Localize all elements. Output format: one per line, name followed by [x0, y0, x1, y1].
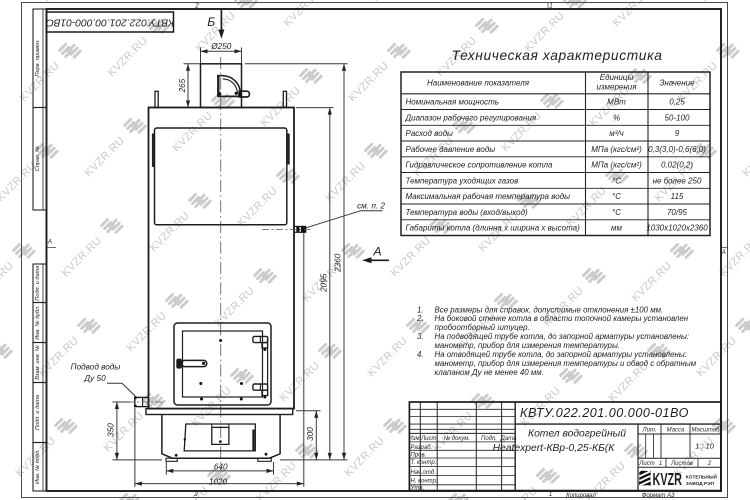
svg-text:0,25: 0,25 [669, 98, 685, 107]
svg-text:9: 9 [675, 129, 680, 138]
svg-text:Взам. инв. №: Взам. инв. № [35, 345, 41, 380]
svg-text:70/95: 70/95 [667, 208, 688, 217]
svg-text:Формат А3: Формат А3 [642, 493, 675, 499]
svg-text:Дата: Дата [500, 436, 517, 442]
svg-text:Инв. № подл.: Инв. № подл. [35, 449, 41, 484]
svg-text:Утв.: Утв. [410, 486, 425, 492]
svg-text:Лит.: Лит. [641, 427, 656, 433]
svg-text:Температура воды (вход/выход): Температура воды (вход/выход) [406, 208, 528, 217]
svg-text:0,3(3,0)-0,6(6,0): 0,3(3,0)-0,6(6,0) [648, 145, 706, 154]
svg-text:Разраб.: Разраб. [411, 445, 433, 451]
svg-text:1030х1020х2360: 1030х1020х2360 [646, 224, 708, 233]
svg-text:Копировал: Копировал [566, 493, 596, 499]
svg-text:На боковой стенке котла в обла: На боковой стенке котла в области топочн… [435, 314, 689, 323]
svg-text:Инв. № дубл.: Инв. № дубл. [35, 305, 41, 339]
svg-text:°С: °С [612, 208, 621, 217]
svg-text:манометр, прибор для измерения: манометр, прибор для измерения температу… [435, 359, 697, 368]
svg-text:Лист: Лист [638, 461, 654, 467]
svg-text:Подп.: Подп. [481, 436, 497, 442]
svg-text:Листов: Листов [670, 461, 693, 467]
svg-text:Справ. №: Справ. № [35, 146, 41, 171]
svg-text:манометр, прибор для измерения: манометр, прибор для измерения температу… [435, 341, 620, 350]
svg-text:КВТУ.022.201.00.000-01ВО: КВТУ.022.201.00.000-01ВО [46, 16, 174, 27]
svg-text:Значение: Значение [659, 79, 695, 88]
svg-text:1: 1 [659, 461, 662, 467]
svg-text:МПа (кгс/см²): МПа (кгс/см²) [591, 161, 642, 170]
svg-text:Котел водогрейный: Котел водогрейный [528, 429, 626, 440]
svg-text:Т. контр.: Т. контр. [411, 460, 437, 466]
svg-text:КВТУ.022.201.00.000-01ВО: КВТУ.022.201.00.000-01ВО [520, 406, 689, 420]
svg-text:2095: 2095 [319, 273, 328, 293]
svg-text:Рабочее давление воды: Рабочее давление воды [406, 145, 496, 154]
svg-text:Н. контр.: Н. контр. [411, 479, 438, 485]
svg-text:Наименование показателя: Наименование показателя [427, 79, 530, 88]
svg-text:МПа (кгс/см²): МПа (кгс/см²) [591, 145, 642, 154]
svg-text:МВт: МВт [607, 98, 626, 107]
svg-text:1: 1 [549, 492, 552, 498]
svg-text:А: А [47, 240, 52, 246]
svg-text:см. п. 2: см. п. 2 [357, 202, 385, 211]
svg-text:1: 1 [549, 4, 552, 10]
svg-text:А: А [372, 244, 381, 258]
svg-text:°С: °С [612, 176, 621, 185]
svg-text:4.: 4. [417, 350, 424, 359]
svg-text:Габариты котла (длинна х ширин: Габариты котла (длинна х ширина х высота… [406, 224, 581, 233]
svg-text:Б: Б [207, 15, 215, 29]
svg-text:3.: 3. [417, 332, 424, 341]
svg-text:Ду 50: Ду 50 [83, 374, 106, 383]
svg-text:50-100: 50-100 [665, 113, 690, 122]
svg-text:Техническая характеристика: Техническая характеристика [452, 48, 663, 63]
svg-text:2.: 2. [416, 314, 424, 323]
svg-text:Изм.: Изм. [409, 436, 422, 442]
svg-text:Единицы: Единицы [600, 73, 634, 82]
svg-text:300: 300 [306, 427, 315, 441]
svg-text:клапаном Ду не менее 40 мм.: клапаном Ду не менее 40 мм. [435, 368, 544, 377]
svg-text:Гидравлическое сопротивление к: Гидравлическое сопротивление котла [406, 161, 554, 170]
svg-text:Heatexpert-КВр-0,25-КБ(К: Heatexpert-КВр-0,25-КБ(К [493, 443, 616, 454]
svg-text:Диапазон рабочего регулировани: Диапазон рабочего регулирования [405, 113, 537, 122]
svg-text:640: 640 [214, 463, 228, 472]
svg-text:Ø250: Ø250 [210, 42, 231, 51]
svg-text:265: 265 [178, 78, 187, 93]
svg-text:%: % [613, 113, 620, 122]
svg-text:мм: мм [611, 224, 622, 233]
svg-text:Масштаб: Масштаб [691, 427, 720, 433]
svg-text:°С: °С [612, 192, 621, 201]
svg-text:Масса: Масса [667, 427, 685, 433]
svg-text:2: 2 [707, 461, 712, 467]
svg-text:115: 115 [671, 192, 684, 201]
svg-text:1020: 1020 [209, 477, 228, 486]
svg-text:не более 250: не более 250 [653, 176, 702, 185]
svg-text:350: 350 [107, 423, 116, 437]
svg-text:Лист: Лист [420, 436, 436, 442]
svg-text:2: 2 [194, 4, 199, 10]
svg-text:А: А [721, 250, 726, 256]
svg-text:пробоотборный штуцер.: пробоотборный штуцер. [435, 323, 530, 332]
svg-text:Максимальная рабочая температу: Максимальная рабочая температура воды [406, 192, 571, 201]
svg-text:м³/ч: м³/ч [609, 129, 624, 138]
svg-text:На отводящей трубе котла, до з: На отводящей трубе котла, до запорной ар… [435, 350, 687, 359]
svg-text:Номинальная мощность: Номинальная мощность [406, 98, 499, 107]
svg-text:Подп. и дата: Подп. и дата [35, 266, 41, 301]
svg-text:Пров.: Пров. [411, 452, 427, 458]
svg-text:Температура уходящих газов: Температура уходящих газов [406, 176, 519, 185]
svg-text:Расход воды: Расход воды [406, 129, 453, 138]
svg-text:2: 2 [193, 492, 198, 498]
svg-text:На подводящей трубе котла, до: На подводящей трубе котла, до запорной а… [435, 332, 689, 341]
svg-text:Подп. и дата: Подп. и дата [35, 395, 41, 430]
svg-text:Перв. примен.: Перв. примен. [35, 39, 41, 76]
svg-text:измерения: измерения [596, 83, 637, 92]
svg-text:KVZR: KVZR [653, 469, 683, 489]
svg-text:Нач.отд.: Нач.отд. [411, 470, 436, 476]
svg-text:1 : 10: 1 : 10 [695, 441, 715, 450]
svg-text:№ докум.: № докум. [444, 435, 470, 442]
svg-text:Подвод воды: Подвод воды [71, 362, 121, 371]
svg-text:0,02(0,2): 0,02(0,2) [661, 161, 693, 170]
svg-text:ЗАВОД РЭП: ЗАВОД РЭП [686, 481, 715, 487]
svg-text:2360: 2360 [334, 253, 343, 273]
